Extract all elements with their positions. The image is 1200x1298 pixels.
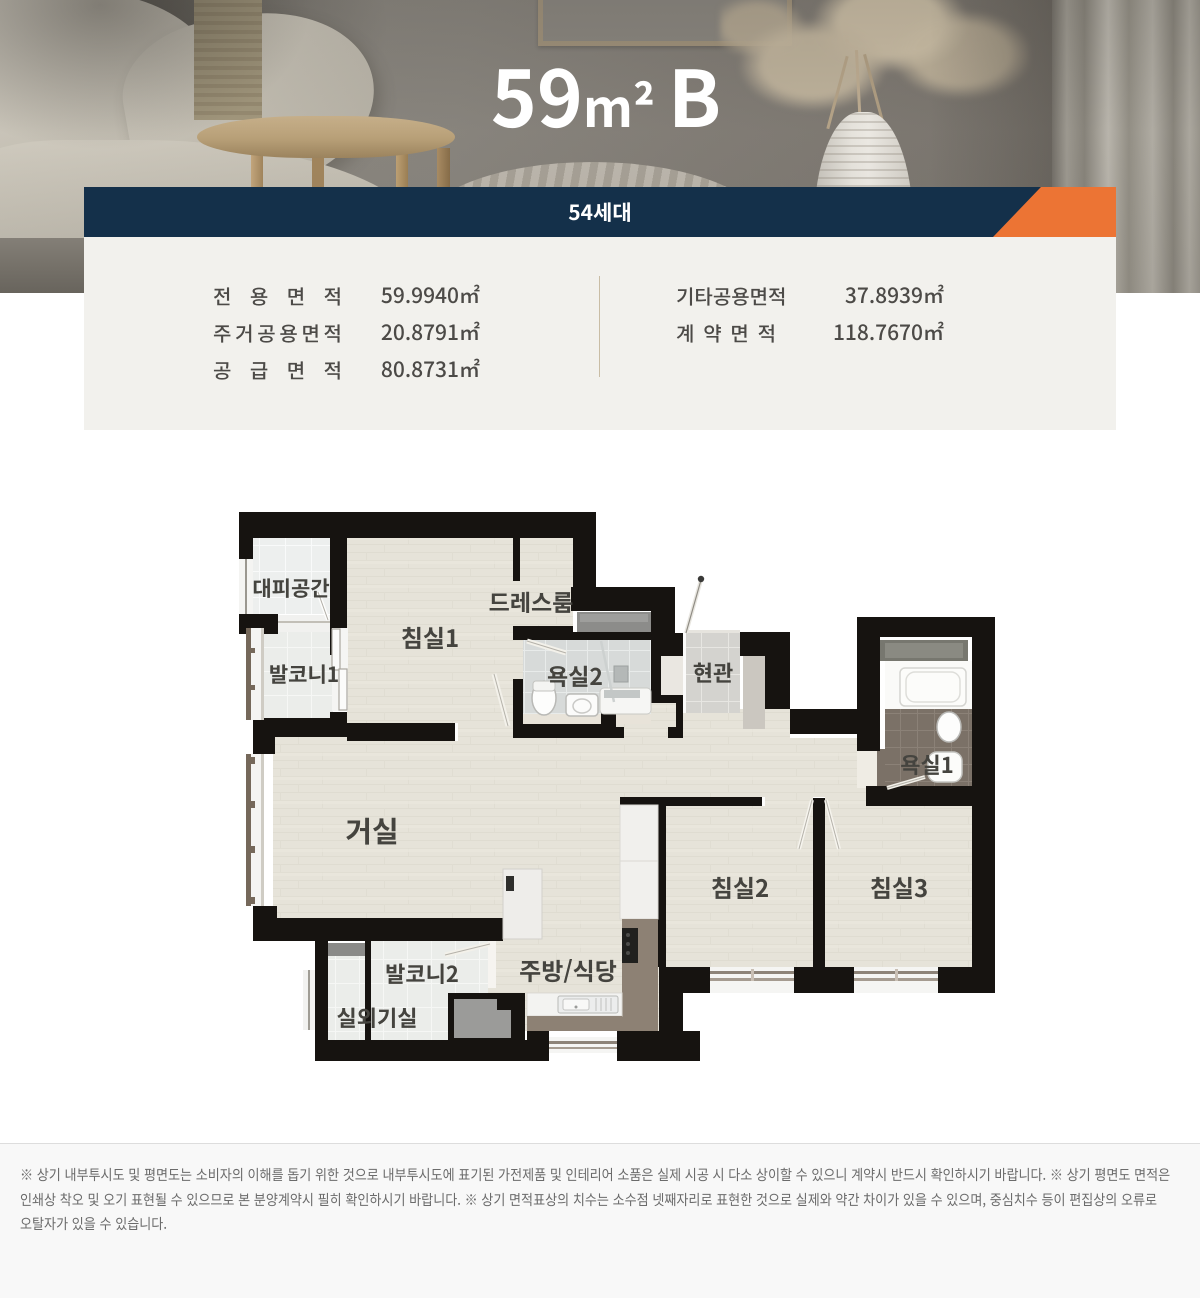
svg-text:욕실1: 욕실1 — [900, 748, 953, 780]
svg-text:욕실2: 욕실2 — [547, 658, 603, 692]
svg-text:현관: 현관 — [693, 656, 733, 688]
svg-text:발코니1: 발코니1 — [269, 659, 339, 689]
svg-text:침실1: 침실1 — [401, 619, 459, 654]
svg-text:드레스룸: 드레스룸 — [489, 584, 574, 618]
svg-text:거실: 거실 — [345, 809, 398, 851]
svg-text:대피공간: 대피공간 — [252, 573, 329, 603]
svg-text:주방/식당: 주방/식당 — [519, 952, 617, 987]
svg-text:발코니2: 발코니2 — [385, 957, 459, 989]
svg-text:침실2: 침실2 — [711, 869, 769, 904]
svg-text:침실3: 침실3 — [870, 869, 928, 904]
svg-text:실외기실: 실외기실 — [337, 1001, 418, 1033]
